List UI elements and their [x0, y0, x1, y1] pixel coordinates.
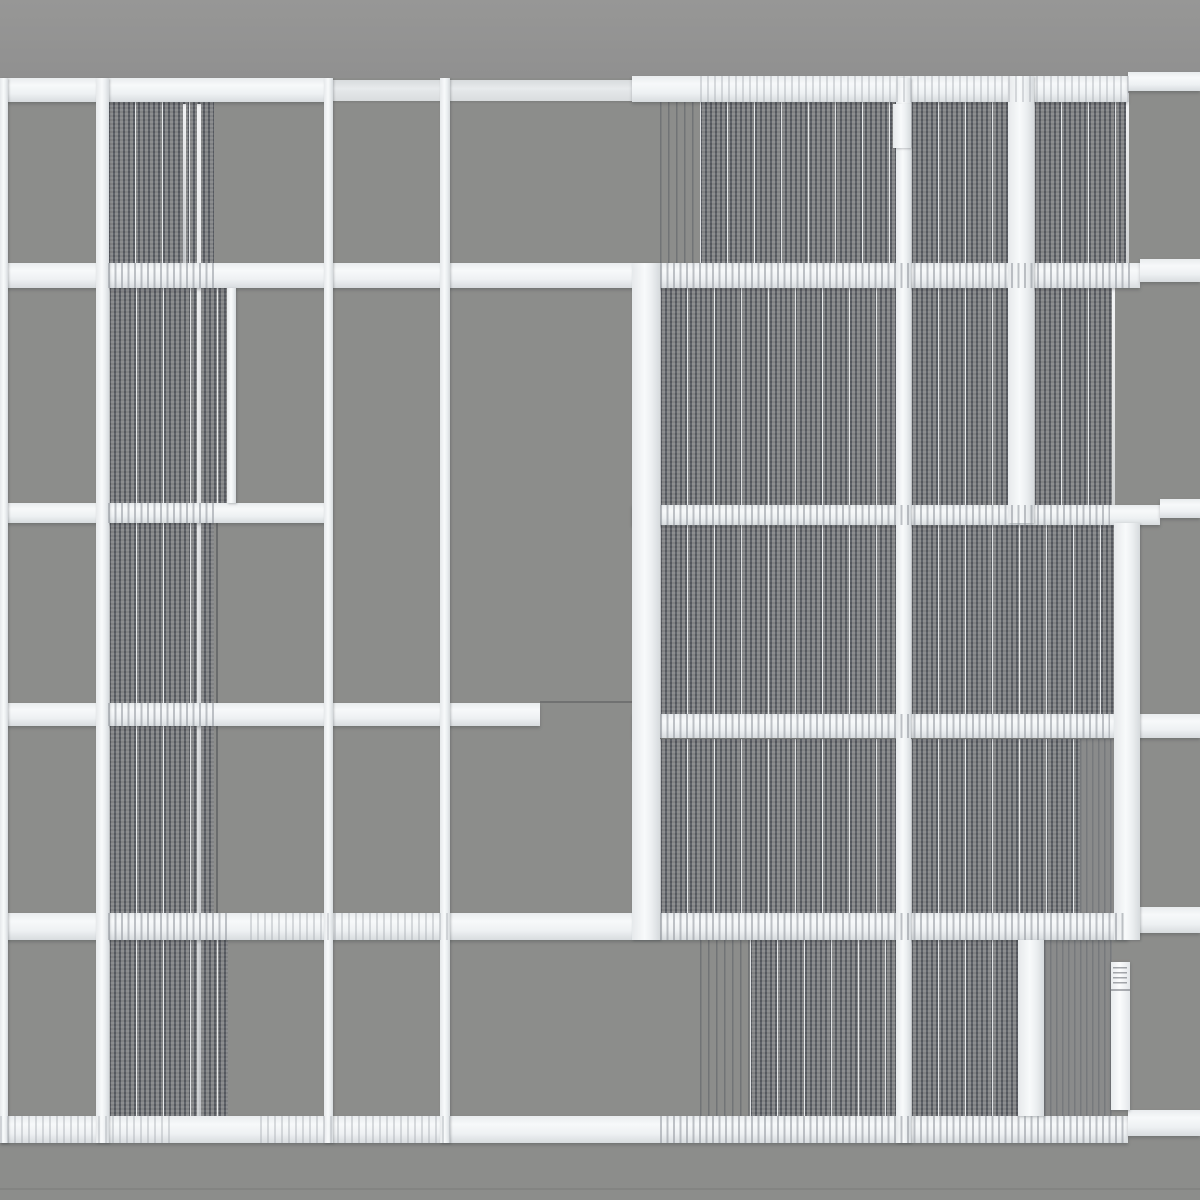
bar-h1-end	[1128, 72, 1200, 91]
bar-h2-end	[1140, 259, 1200, 282]
panel-r5-mid-sparse	[700, 940, 750, 1116]
panel-r2-right	[911, 288, 1008, 505]
hang-tag	[1111, 962, 1130, 1110]
fringe-h6-a	[0, 1116, 170, 1143]
bar-v-left-edge	[0, 78, 8, 1143]
bar-v3	[440, 78, 450, 1143]
panel-r4-right	[911, 739, 1080, 913]
fringe-h5-right	[660, 913, 1128, 940]
bar-v5	[896, 78, 911, 1143]
fringe-h4-left	[108, 703, 214, 726]
fringe-h5-mid	[250, 913, 450, 940]
sky-band	[0, 0, 1200, 78]
bar-v2	[324, 78, 333, 1143]
warp-line-row2-right-edge	[1112, 288, 1115, 505]
panel-r5-far-light	[1044, 940, 1112, 1116]
fringe-h2-right	[660, 263, 1130, 288]
warp-line-left-panel	[197, 104, 201, 1116]
fringe-h5-left	[108, 913, 228, 940]
panel-r3-mid	[660, 523, 896, 714]
panel-r2-left	[109, 288, 227, 503]
panel-r2-far	[1034, 288, 1112, 505]
seam-h4-gap	[540, 701, 634, 703]
panel-r4-mid	[660, 739, 896, 913]
bar-v7-wide	[1114, 523, 1140, 940]
panel-r3-right	[911, 523, 1114, 714]
thread-artwork-photo	[0, 0, 1200, 1200]
panel-r2-mid	[660, 288, 896, 505]
bar-h6-end	[1128, 1110, 1200, 1136]
fringe-h4-right	[660, 714, 1110, 738]
panel-r1-mid-sparse	[660, 102, 702, 263]
fringe-h6-c	[660, 1116, 1128, 1143]
bar-v4-wide	[632, 263, 660, 940]
bar-h1-middle	[330, 80, 632, 101]
panel-r4-far-light	[1080, 739, 1114, 913]
fringe-h2-left	[108, 263, 214, 288]
panel-r5-mid	[750, 940, 896, 1116]
fringe-h6-b	[260, 1116, 450, 1143]
bar-v5-cap	[893, 104, 911, 148]
fringe-h1-right	[700, 76, 1130, 102]
panel-r1-mid	[700, 102, 896, 263]
warp-line-row1-right-edge	[1126, 93, 1129, 265]
bar-v-short-row2	[227, 288, 236, 503]
seam-wall-bottom	[0, 1188, 1200, 1190]
bar-h4-left	[0, 703, 540, 726]
bar-h3-end	[1160, 499, 1200, 518]
panel-r5-right	[911, 940, 1018, 1116]
fringe-h3-right	[660, 505, 1110, 525]
bar-v6-upper	[1008, 76, 1034, 523]
panel-r1-far	[1034, 102, 1126, 263]
panel-r1-right	[911, 102, 1008, 263]
bar-h1-left	[0, 78, 330, 102]
bar-v6-lower	[1018, 940, 1044, 1116]
fringe-h3-left	[108, 503, 214, 523]
panel-r5-left	[109, 940, 228, 1116]
bar-v1	[96, 78, 109, 1143]
warp-line-row1-left	[183, 104, 186, 263]
